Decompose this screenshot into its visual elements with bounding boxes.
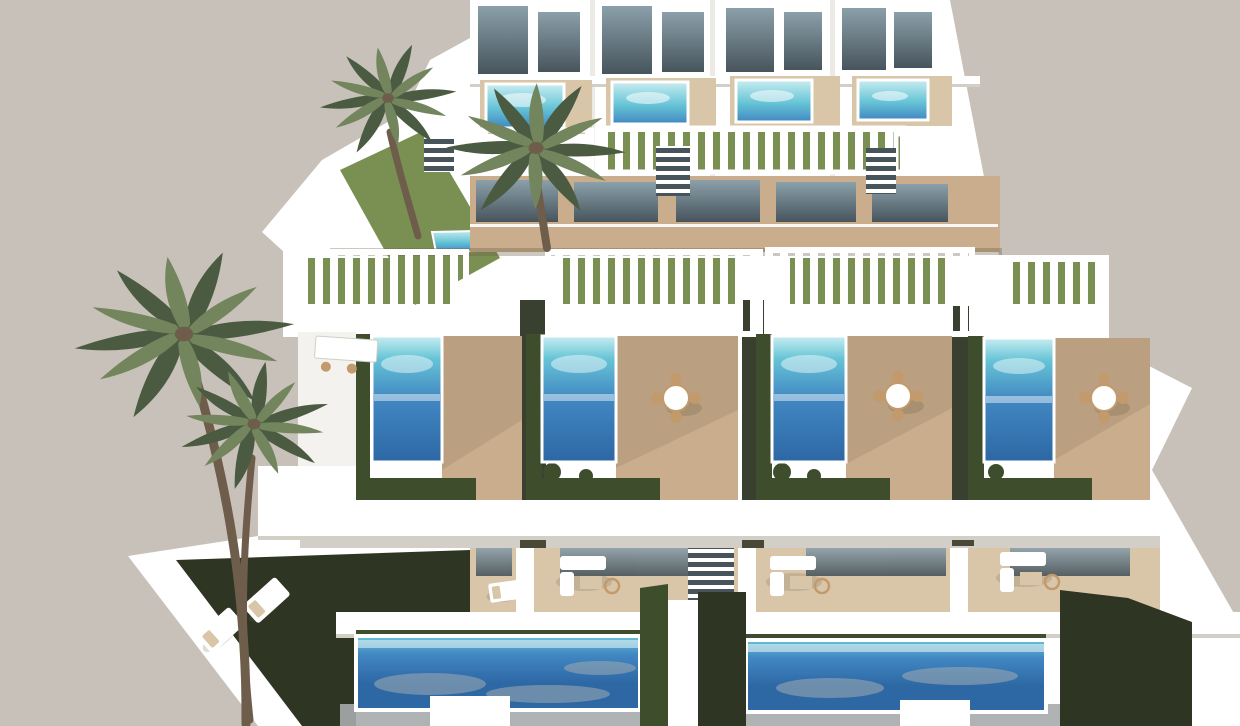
tier-bottom [176, 540, 1240, 726]
glass-panel [776, 182, 856, 222]
glass-panel [574, 182, 658, 222]
pergola [286, 252, 466, 334]
glass-balustrade [470, 224, 998, 227]
hedge [356, 478, 476, 500]
tier-shadow-line [300, 540, 1160, 548]
tier-middle [258, 248, 1160, 548]
glass-panel [784, 12, 822, 70]
pool-access-slab [430, 696, 510, 726]
pergola [978, 258, 1106, 342]
tier-middle-pergolas [286, 250, 1106, 342]
pergola [896, 134, 966, 182]
glass-panel [538, 12, 580, 72]
glass-panel [476, 548, 512, 576]
pergola [768, 250, 972, 334]
hedge [526, 334, 542, 484]
glass-panel [842, 8, 886, 70]
hedge [756, 334, 772, 484]
glass-panel [726, 8, 774, 72]
potted-plant [807, 469, 821, 483]
pergola [604, 128, 904, 172]
potted-plant [579, 469, 593, 483]
glass-panel [806, 548, 946, 576]
glass-panel [662, 12, 704, 72]
dark-lawn-strip [698, 592, 746, 726]
hedge [526, 478, 660, 500]
hedge [968, 336, 984, 484]
potted-plant [543, 463, 561, 481]
potted-plant [773, 463, 791, 481]
pool-divider-wall [668, 600, 698, 726]
pergola [548, 252, 760, 334]
glass-panel [602, 6, 652, 74]
terrace-front-slab [258, 500, 1160, 540]
hedge-wall [640, 584, 668, 726]
glass-panel [894, 12, 932, 68]
potted-plant [988, 464, 1004, 480]
hedge [968, 478, 1092, 500]
aerial-render-of-white-villas-with-pools [0, 0, 1240, 726]
pool-access-slab [900, 700, 970, 726]
slab-edge-shadow [258, 536, 1160, 540]
glass-panel [478, 6, 528, 74]
hedge [756, 478, 890, 500]
